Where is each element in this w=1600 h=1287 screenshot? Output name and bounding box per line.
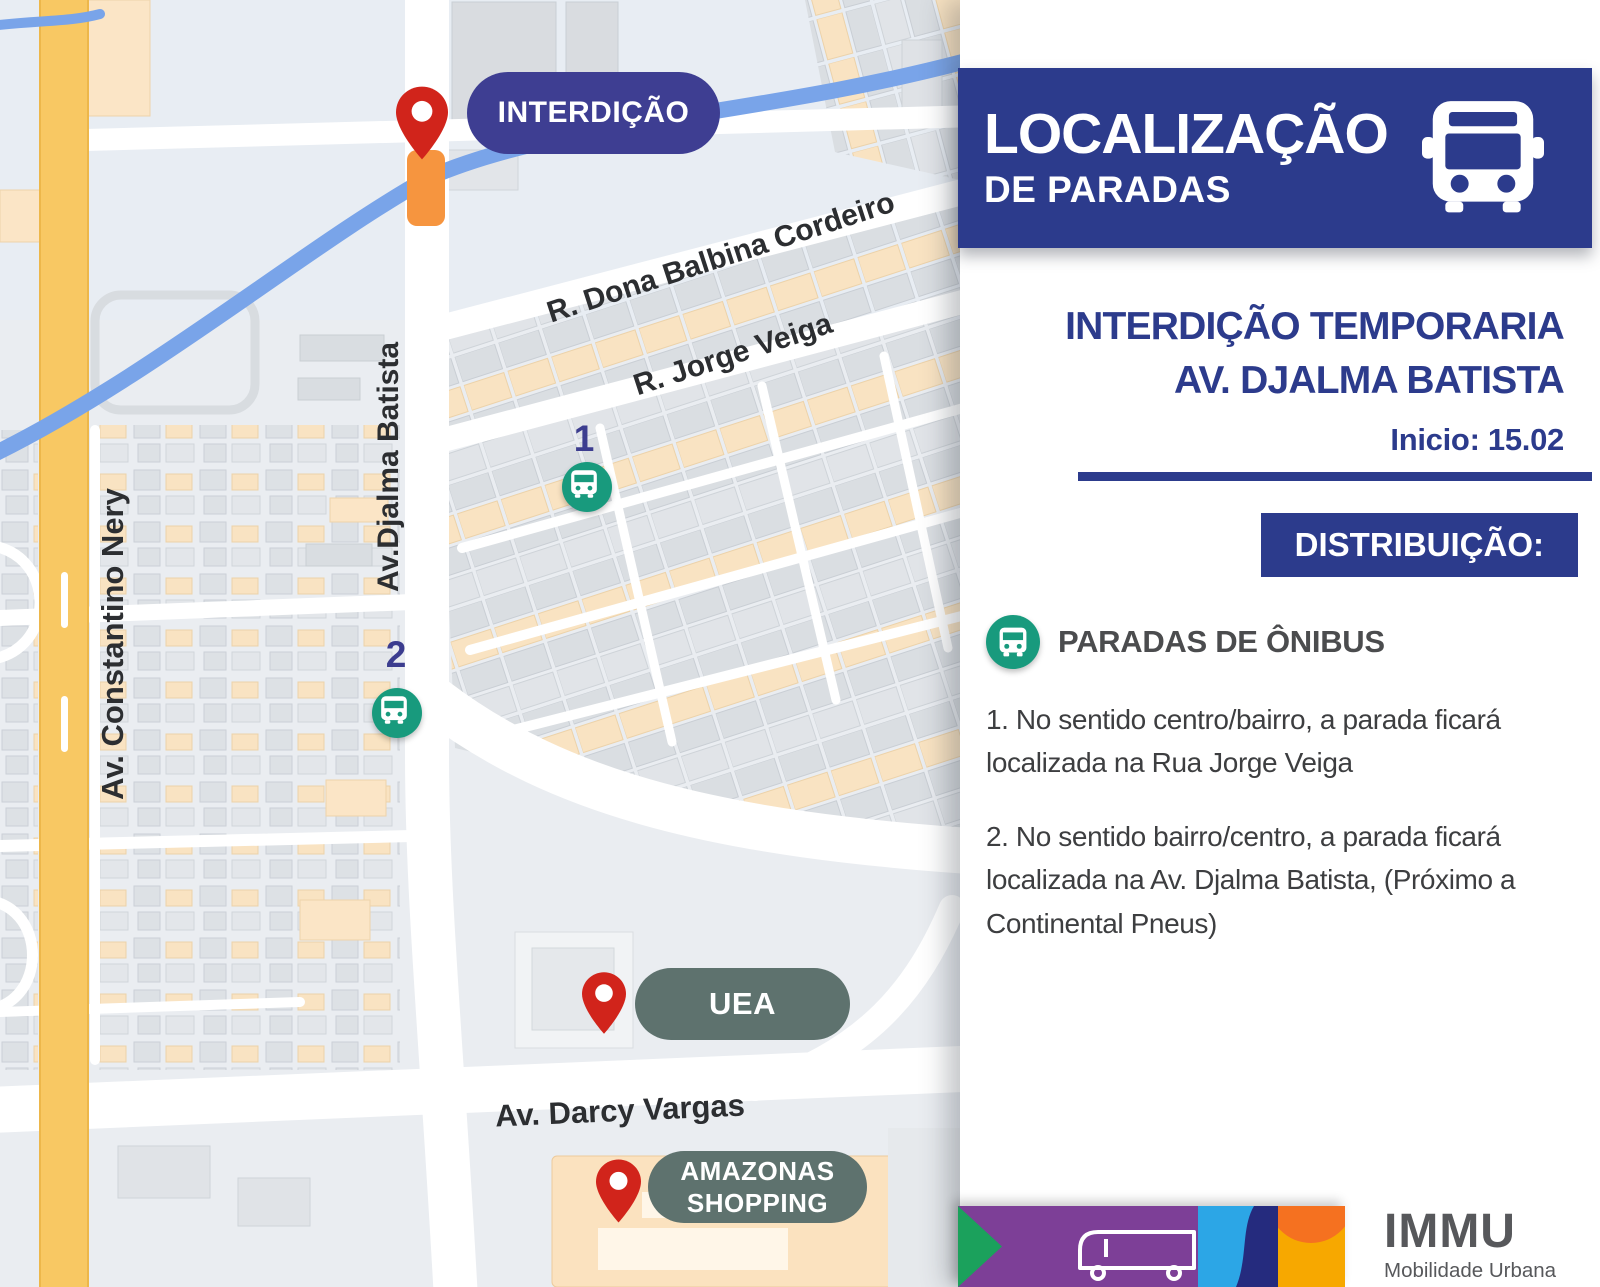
instruction-item-2: 2. No sentido bairro/centro, a parada fi… [986, 815, 1570, 945]
instruction-item-1: 1. No sentido centro/bairro, a parada fi… [986, 698, 1570, 785]
instructions: 1. No sentido centro/bairro, a parada fi… [986, 698, 1570, 975]
map-background [0, 0, 960, 1287]
legend-row: PARADAS DE ÔNIBUS [986, 615, 1385, 669]
info-panel: LOCALIZAÇÃO DE PARADAS INTERDIÇÃO TEMPOR… [960, 0, 1600, 1287]
notice-heading-line2: AV. DJALMA BATISTA [1065, 354, 1564, 408]
map-pin-icon [396, 82, 448, 164]
legend-title: PARADAS DE ÔNIBUS [1058, 624, 1385, 660]
interdicao-badge-label: INTERDIÇÃO [498, 96, 690, 130]
shopping-badge-line1: AMAZONAS [680, 1155, 834, 1188]
uea-badge-label: UEA [709, 986, 776, 1022]
page-title: LOCALIZAÇÃO [984, 105, 1388, 165]
map-pin-icon [596, 1154, 641, 1228]
header-banner: LOCALIZAÇÃO DE PARADAS [958, 68, 1592, 248]
stop-2-number: 2 [374, 634, 418, 676]
divider [1078, 472, 1592, 481]
poster: Av. Constantino Nery Av.Djalma Batista R… [0, 0, 1600, 1287]
interdicao-badge: INTERDIÇÃO [467, 72, 720, 154]
bus-stop-1-icon [562, 462, 612, 512]
shopping-badge-line2: SHOPPING [687, 1187, 828, 1220]
map-pin-icon [582, 966, 626, 1040]
highway-constantino-nery [40, 0, 88, 1287]
uea-badge: UEA [635, 968, 850, 1040]
bus-stop-2-icon [372, 688, 422, 738]
stop-1-number: 1 [562, 418, 606, 460]
street-label-djalma-batista: Av.Djalma Batista [372, 317, 406, 617]
street-label-constantino-nery: Av. Constantino Nery [95, 464, 131, 824]
page-subtitle: DE PARADAS [984, 169, 1388, 211]
immu-logo-tagline: Mobilidade Urbana [1384, 1259, 1556, 1283]
start-date: Inicio: 15.02 [1065, 422, 1564, 458]
notice-heading: INTERDIÇÃO TEMPORARIA AV. DJALMA BATISTA… [1065, 300, 1564, 458]
immu-logo-name: IMMU [1384, 1208, 1556, 1256]
bus-stop-icon [986, 615, 1040, 669]
amazonas-shopping-badge: AMAZONAS SHOPPING [648, 1151, 867, 1223]
map-area: Av. Constantino Nery Av.Djalma Batista R… [0, 0, 960, 1287]
brand-strip [958, 1206, 1345, 1287]
notice-heading-line1: INTERDIÇÃO TEMPORARIA [1065, 300, 1564, 354]
distribution-badge: DISTRIBUIÇÃO: [1261, 513, 1578, 577]
immu-logo: IMMU Mobilidade Urbana [1384, 1208, 1556, 1283]
bus-icon [1422, 92, 1544, 218]
